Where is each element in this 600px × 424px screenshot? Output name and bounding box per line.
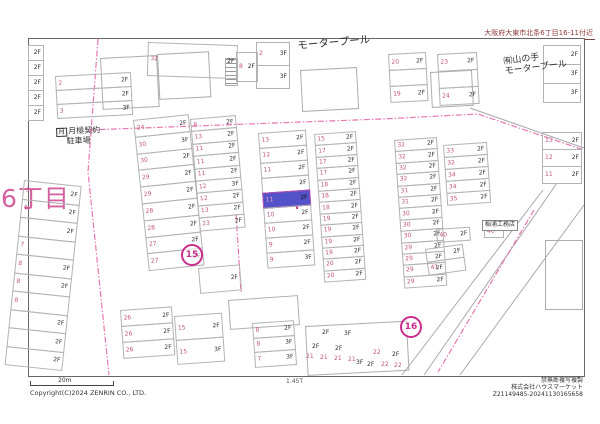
floor-label: 3F [122,105,130,111]
lot-number: 11 [195,146,203,153]
floor-label: 2F [312,344,319,350]
lot-number: 6 [24,205,28,211]
lot-number: 11 [545,172,553,178]
lot-block: 332F322F342F342F352F [443,142,491,206]
floor-label: 2F [418,90,426,96]
floor-label: 3F [280,74,287,80]
floor-label: 2F [392,352,399,358]
lot-number: 29 [406,267,414,274]
floor-label: 2F [299,180,307,186]
floor-label: 2F [60,284,68,291]
lot-number: 33 [446,148,454,155]
lot-number: 19 [324,227,332,234]
floor-label: 2F [229,156,237,163]
lot-number: 29 [407,279,415,286]
lot-plot: 2F [198,264,242,294]
floor-label: 2F [302,225,310,231]
lot-number: 8 [256,342,260,348]
lot-plot: 2F [28,60,44,76]
floor-label: 2F [184,170,192,177]
lot-block: 322F [147,42,238,79]
rights-notice: 禁無断複写複製 [493,377,583,384]
lot-number: 32 [399,165,407,172]
lot-number: 30 [140,158,148,165]
lot-block: 232F242F [437,52,480,106]
floor-label: 2F [322,330,329,336]
floor-label: 3F [571,71,578,77]
lot-plot: 242F [439,86,480,106]
lot-number: 11 [266,197,274,204]
lot-plot: 132F [542,132,582,150]
floor-label: 2F [179,120,187,127]
floor-label: 2F [354,248,362,254]
lot-number: 40 [439,232,447,239]
floor-label: 2F [430,186,438,192]
lot-number: 28 [145,208,153,215]
floor-label: 2F [233,205,241,212]
lot-number: 22 [373,350,381,356]
lot-number: 10 [267,212,275,219]
lot-number: 28 [147,225,155,232]
floor-label: 2F [571,52,578,58]
lot-number: 19 [323,216,331,223]
floor-label: 3F [286,354,294,360]
floor-label: 2F [469,92,477,98]
lot-number: 11 [197,159,205,166]
lot-number: 3 [60,108,64,114]
lot-number: 18 [321,193,329,200]
lot-number: 13 [545,138,553,144]
floor-label: 2F [335,346,342,352]
lot-number: 17 [318,148,326,155]
lot-number: 18 [322,205,330,212]
lot-number: 32 [400,177,408,184]
floor-label: 2F [284,325,292,331]
lot-number: 15 [178,325,186,332]
floor-label: 3F [181,137,189,144]
lot-number: 29 [144,192,152,199]
lot-number: 17 [319,159,327,166]
floor-label: 2F [346,134,354,140]
copyright-notice: Copyright(C)2024 ZENRIN CO., LTD. [30,389,146,397]
floor-label: 2F [57,320,65,327]
floor-label: 2F [477,146,485,152]
floor-label: 3F [214,346,222,352]
lot-number: 7 [20,242,24,248]
lot-plot: 73F [254,349,297,367]
floor-label: 2F [347,157,355,163]
lot-plot: 93F [266,249,315,268]
lot-number: 19 [393,91,401,97]
floor-label: 2F [230,168,238,175]
floor-label: 2F [467,58,475,64]
floor-label: 2F [348,169,356,175]
lot-plot: 3F [543,83,581,103]
landmark-text-line: 駐車場 [56,135,100,146]
floor-label: 2F [66,228,74,235]
lot-number: 41 [430,264,438,271]
lot-block: 82F83F73F [252,320,297,367]
lot-number: 30 [404,233,412,240]
lot-number: 20 [391,59,399,65]
lot-number: 21 [320,355,328,361]
lot-number: 31 [401,199,409,206]
floor-label: 2F [228,144,236,151]
lot-number: 32 [398,154,406,161]
floor-label: 2F [416,58,424,64]
lot-plot: 153F [176,337,226,365]
lot-number: 17 [320,171,328,178]
floor-label: 2F [429,174,437,180]
company-name: 株式会社ハウスマーケット [493,384,583,391]
lot-number: 8 [193,122,197,128]
lot-number: 26 [126,347,134,354]
floor-label: 2F [480,194,488,200]
floor-label: 2F [301,210,309,216]
lot-block: 202F192F [388,52,429,103]
floor-label: 2F [55,339,63,346]
lot-block: 82F132F112F112F112F123F122F132F232F [190,115,246,231]
lot-block: 82F [236,52,258,82]
floor-label: 2F [349,180,357,186]
lot-plot: 122F [542,149,582,167]
floor-label: 2F [53,357,61,364]
lot-number: 23 [440,59,448,65]
lot-block: 402F [436,227,471,243]
floor-label: 2F [34,50,41,56]
lot-number: 11 [263,167,271,174]
floor-label: 2F [186,187,194,194]
lot-number: 29 [405,256,413,263]
print-serial: Z21149485-20241130165658 [493,391,583,398]
lot-block: 152F153F [174,313,225,365]
lot-number: 12 [545,155,553,161]
lot-plot: 3F [256,65,290,89]
floor-label: 2F [351,203,359,209]
floor-label: 2F [453,248,461,255]
block-number-circle: 15 [181,244,203,266]
floor-label: 2F [300,195,308,201]
lot-plot: 112F [542,166,582,184]
floor-label: 2F [352,225,360,231]
lot-number: 10 [268,227,276,234]
floor-label: 2F [432,209,440,215]
lot-block: 2F41 [425,244,466,276]
floor-label: 2F [479,170,487,176]
floor-label: 2F [68,210,76,217]
floor-label: 2F [62,265,70,272]
floor-label: 2F [235,218,243,225]
scale-bar [30,381,114,386]
lot-plot: 82F [236,52,258,82]
lot-number: 13 [201,208,209,215]
floor-label: 2F [303,240,311,246]
lot-block: 132F122F112F [542,132,582,184]
zenrin-map-screenshot: 大阪府大東市北条6丁目16-11付近 6丁目 + 2F2F2F2F2F22F2F… [0,0,600,424]
lot-number: 30 [403,222,411,229]
lot-number: 27 [151,258,159,265]
floor-label: 3F [344,331,351,337]
floor-label: 2F [572,155,579,161]
floor-label: 2F [122,91,130,97]
lot-number: 19 [325,250,333,257]
lot-number: 15 [179,349,187,356]
lot-block: 132F122F112F2F112F102F102F92F93F [258,130,315,269]
floor-label: 2F [572,172,579,178]
lot-number: 24 [137,125,145,132]
lot-plot: 2F [28,45,44,61]
building-outline [545,240,583,310]
lot-number: 27 [149,242,157,249]
lot-block: 23F3F [256,42,290,89]
floor-label: 2F [427,140,435,146]
floor-label: 2F [478,158,486,164]
lot-number: 35 [450,196,458,203]
floor-label: 2F [296,135,304,141]
floor-label: 2F [432,220,440,226]
floor-label: 2F [191,237,199,244]
lot-number: 20 [327,273,335,280]
lot-plot: 2F [28,105,44,121]
floor-label: 2F [34,110,41,116]
lot-number: 20 [326,261,334,268]
lot-number: 18 [320,182,328,189]
lot-number: 12 [200,196,208,203]
floor-label: 3F [304,255,312,261]
lot-number: 9 [270,257,274,263]
lot-number: 8 [255,327,259,333]
lot-number: 19 [324,239,332,246]
map-symbol-box: 月 [56,128,67,137]
lot-number: 23 [202,220,210,227]
lot-number: 29 [142,175,150,182]
floor-label: 2F [350,191,358,197]
lot-number: 2 [58,80,62,86]
lot-plot: 2F [28,75,44,91]
floor-label: 2F [162,312,170,318]
floor-label: 2F [121,77,129,83]
ratio-label: 1.45T [286,378,303,385]
floor-label: 2F [297,150,305,156]
floor-label: 2F [212,322,220,328]
lot-number: 30 [402,211,410,218]
lot-number: 26 [124,331,132,338]
floor-label: 2F [460,231,468,237]
lot-number: 8 [16,279,20,285]
lot-number: 11 [198,171,206,178]
floor-label: 2F [190,221,198,228]
lot-number: 34 [449,184,457,191]
lot-plot: 23F [256,42,290,66]
lot-number: 12 [199,183,207,190]
floor-label: 2F [351,214,359,220]
lot-number: 13 [261,137,269,144]
building-outline [300,67,359,112]
floor-label: 2F [355,271,363,277]
lot-number: 9 [269,242,273,248]
floor-label: 2F [183,154,191,161]
lot-plot: 2F [28,90,44,106]
legal-block: 禁無断複写複製 株式会社ハウスマーケット Z21149485-202411301… [493,377,583,398]
lot-number: 8 [14,297,18,303]
lot-block: 22F2F33F [55,72,133,119]
lot-number: 34 [448,172,456,179]
lot-number: 8 [18,261,22,267]
lot-number: 30 [138,141,146,148]
lot-plot: 192F [390,84,429,103]
floor-label: 2F [226,119,234,126]
lot-number: 22 [381,362,389,368]
floor-label: 2F [436,277,444,283]
floor-label: 2F [298,165,306,171]
floor-label: 2F [479,182,487,188]
lot-number: 8 [239,64,243,70]
floor-label: 2F [163,328,171,334]
floor-label: 2F [355,259,363,265]
floor-label: 2F [431,197,439,203]
floor-label: 2F [227,59,234,65]
floor-label: 2F [248,64,255,70]
floor-label: 3F [280,51,287,57]
floor-label: 2F [34,95,41,101]
inaura-koumuten-label: 稲浦工務店 [482,220,518,231]
lot-plot: 322F [147,42,238,79]
floor-label: 2F [428,163,436,169]
lot-number: 21 [348,357,356,363]
lot-number: 5 [26,187,30,193]
floor-label: 3F [356,360,363,366]
lot-number: 32 [447,160,455,167]
lot-number: 32 [397,142,405,149]
floor-label: 2F [34,65,41,71]
floor-label: 3F [571,90,578,96]
lot-number: 2 [259,51,263,57]
lot-block: 262F262F262F [120,306,175,359]
lot-number: 32 [150,56,158,62]
floor-label: 3F [231,181,239,188]
lot-number: 15 [317,136,325,143]
floor-label: 2F [230,275,238,282]
floor-label: 2F [34,80,41,86]
floor-label: 2F [232,193,240,200]
block-number-circle: 16 [400,316,422,338]
floor-label: 2F [367,362,374,368]
lot-plot: 262F [122,338,175,359]
lot-plot: 402F [436,227,471,243]
lot-number: 7 [257,356,261,362]
landmark-text-line: 稲浦工務店 [485,222,515,229]
lot-block: 2F [198,264,242,294]
floor-label: 2F [70,192,78,199]
lot-number: 13 [194,134,202,141]
floor-label: 2F [188,204,196,211]
floor-label: 2F [353,237,361,243]
tsukigime-parking-label: 月月極契約駐車場 [56,125,101,146]
lot-number: 22 [394,363,402,369]
floor-label: 2F [347,146,355,152]
lot-number: 12 [262,152,270,159]
floor-label: 2F [227,131,235,138]
lot-number: 24 [442,93,450,99]
lot-number: 29 [404,245,412,252]
floor-label: 3F [285,339,293,345]
floor-label: 2F [428,152,436,158]
lot-number: 31 [400,188,408,195]
floor-label: 2F [164,344,172,350]
lot-block: 2F2F2F2F2F [28,45,44,121]
lot-number: 26 [123,315,131,322]
scale-label: 20m [58,377,71,384]
map-canvas: 6丁目 + 2F2F2F2F2F22F2F33F322F82F23F3F202F… [0,0,600,424]
lot-number: 21 [334,356,342,362]
lot-number: 21 [306,354,314,360]
floor-label: 2F [572,138,579,144]
